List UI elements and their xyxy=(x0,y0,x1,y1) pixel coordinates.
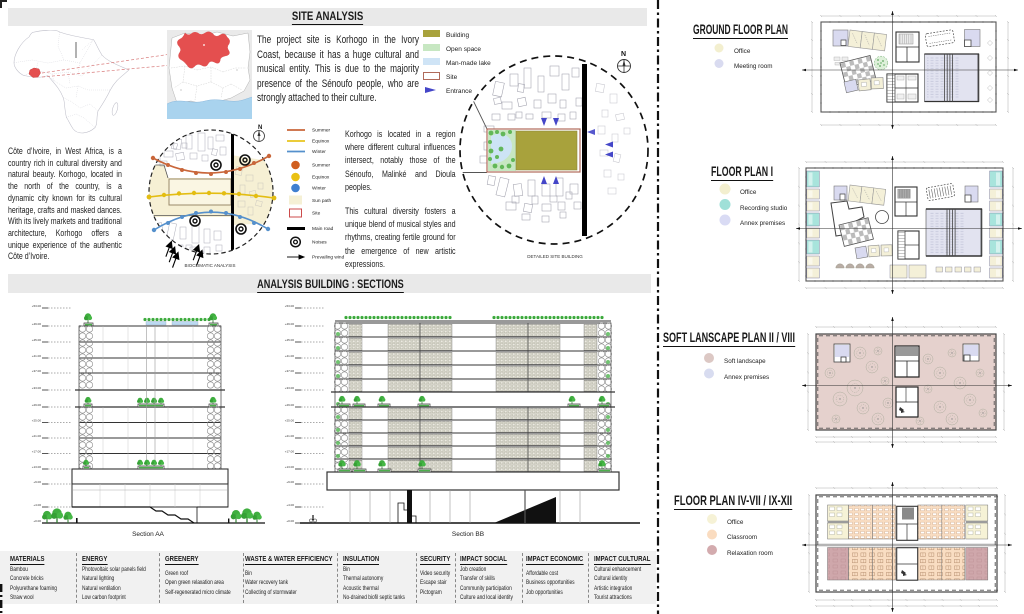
svg-text:N: N xyxy=(258,125,262,131)
svg-text:+53.00: +53.00 xyxy=(285,304,295,308)
svg-text:+29.00: +29.00 xyxy=(32,403,42,407)
svg-text:+37.00: +37.00 xyxy=(32,369,42,373)
svg-text:Noises: Noises xyxy=(312,240,327,246)
svg-text:+21.00: +21.00 xyxy=(285,434,295,438)
svg-text:Summer: Summer xyxy=(312,128,331,134)
svg-text:+49.00: +49.00 xyxy=(285,322,295,326)
svg-text:+41.00: +41.00 xyxy=(285,354,295,358)
svg-text:Equinox: Equinox xyxy=(312,175,330,181)
svg-text:+13.00: +13.00 xyxy=(285,465,295,469)
svg-text:+33.00: +33.00 xyxy=(285,386,295,390)
svg-text:+49.00: +49.00 xyxy=(32,322,42,326)
svg-text:+17.00: +17.00 xyxy=(32,450,42,454)
svg-text:+0.00: +0.00 xyxy=(286,519,294,523)
svg-text:+37.00: +37.00 xyxy=(285,369,295,373)
svg-text:+25.00: +25.00 xyxy=(32,419,42,423)
svg-text:+45.00: +45.00 xyxy=(32,338,42,342)
svg-text:+9.00: +9.00 xyxy=(33,480,41,484)
svg-text:+25.00: +25.00 xyxy=(285,419,295,423)
svg-text:+4.00: +4.00 xyxy=(286,503,294,507)
svg-text:Sun path: Sun path xyxy=(312,198,332,204)
svg-text:+29.00: +29.00 xyxy=(285,403,295,407)
svg-text:Main road: Main road xyxy=(312,226,334,232)
svg-text:Winter: Winter xyxy=(312,149,326,155)
svg-text:+4.00: +4.00 xyxy=(33,503,41,507)
svg-text:Summer: Summer xyxy=(312,163,331,169)
svg-text:+9.00: +9.00 xyxy=(286,480,294,484)
svg-text:Site: Site xyxy=(312,211,321,217)
svg-text:+41.00: +41.00 xyxy=(32,354,42,358)
svg-text:+0.00: +0.00 xyxy=(33,519,41,523)
svg-text:N: N xyxy=(621,51,626,58)
svg-text:+53.00: +53.00 xyxy=(32,304,42,308)
svg-text:+45.00: +45.00 xyxy=(285,338,295,342)
svg-text:+21.00: +21.00 xyxy=(32,434,42,438)
svg-text:+33.00: +33.00 xyxy=(32,386,42,390)
svg-text:+13.00: +13.00 xyxy=(32,465,42,469)
svg-text:+17.00: +17.00 xyxy=(285,450,295,454)
svg-text:Prevailing wind: Prevailing wind xyxy=(312,255,345,261)
svg-text:Equinox: Equinox xyxy=(312,139,330,145)
svg-text:Winter: Winter xyxy=(312,186,326,192)
